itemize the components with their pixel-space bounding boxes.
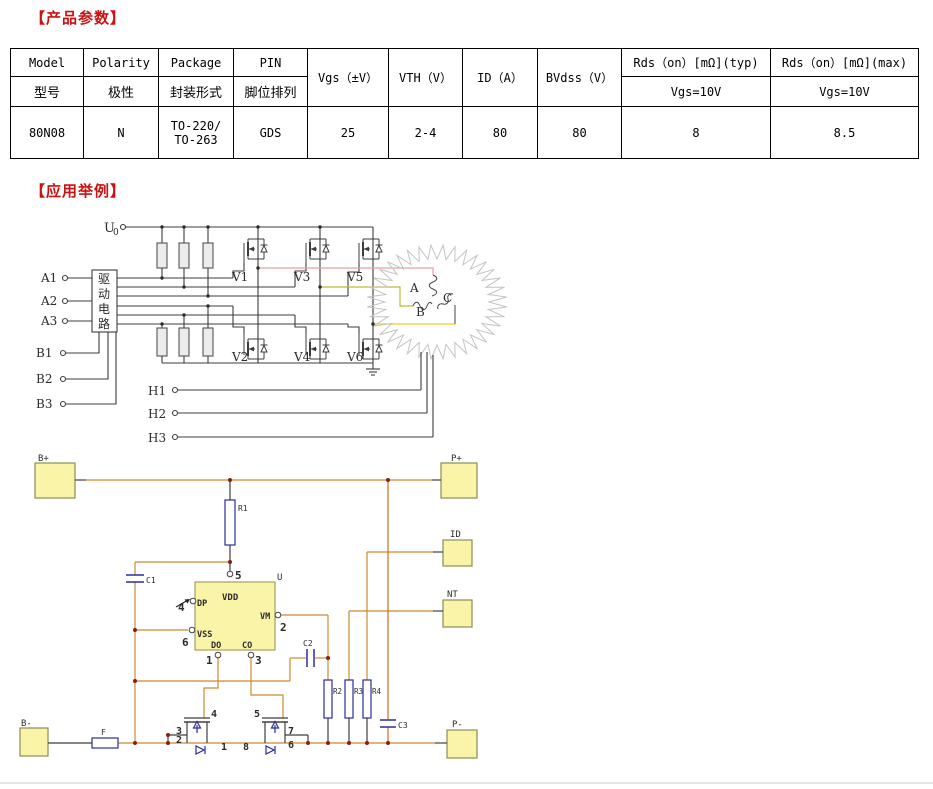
pad-p-minus xyxy=(447,730,477,758)
mosfet-q2: 5 8 7 6 xyxy=(243,709,308,754)
cell-package: TO-220/ TO-263 xyxy=(159,107,234,159)
mosfet-v3: V3 xyxy=(293,239,330,284)
hall-risers xyxy=(421,352,433,437)
ic-pin-co-label: CO xyxy=(242,641,252,651)
ic-pin-dp-label: DP xyxy=(197,599,207,609)
cell-id: 80 xyxy=(463,107,538,159)
drive-box-char-4: 路 xyxy=(98,316,110,331)
q1-pin4-number: 4 xyxy=(211,709,217,720)
col-polarity-cn: 极性 xyxy=(84,77,159,107)
input-b3-label: B3 xyxy=(36,397,52,411)
pad-id-label: ID xyxy=(450,530,461,540)
c2-label: C2 xyxy=(303,639,313,648)
resistor-r4: R4 xyxy=(363,680,382,718)
col-bvdss: BVdss（V） xyxy=(538,49,622,107)
col-pin-en: PIN xyxy=(234,49,308,77)
motor-stator-burst xyxy=(367,245,506,359)
parameters-table: Model Polarity Package PIN Vgs（±V） VTH（V… xyxy=(10,48,919,159)
resistor-r3: R3 xyxy=(345,680,363,718)
cell-model: 80N08 xyxy=(11,107,84,159)
pad-nt xyxy=(443,600,472,627)
cell-rds-max: 8.5 xyxy=(771,107,919,159)
input-a2-label: A2 xyxy=(40,294,57,308)
cell-rds-typ: 8 xyxy=(622,107,771,159)
cell-pin: GDS xyxy=(234,107,308,159)
pad-p-minus-label: P- xyxy=(452,720,463,730)
q1-pin1-number: 1 xyxy=(221,742,227,753)
fet-v1-label: V1 xyxy=(231,270,248,284)
hall-h3-label: H3 xyxy=(148,431,166,445)
ic-pin-do-label: DO xyxy=(211,641,221,651)
section-title-product-parameters: 【产品参数】 xyxy=(30,7,126,28)
pad-id xyxy=(443,540,472,566)
phase-c-label: C xyxy=(443,291,452,305)
col-pin-cn: 脚位排列 xyxy=(234,77,308,107)
ground-symbol xyxy=(366,363,380,375)
ic-pin-vm-label: VM xyxy=(260,612,270,622)
fet-v3-label: V3 xyxy=(293,270,310,284)
fuse-f: F xyxy=(92,728,118,748)
fet-v2-label: V2 xyxy=(231,350,248,364)
cell-package-line1: TO-220/ xyxy=(159,119,233,133)
pad-b-plus-label: B+ xyxy=(38,454,49,464)
u0-terminal-circle xyxy=(121,225,126,230)
data-row: 80N08 N TO-220/ TO-263 GDS 25 2-4 80 80 … xyxy=(11,107,919,159)
col-rds-max-cond: Vgs=10V xyxy=(771,77,919,107)
drive-box-char-2: 动 xyxy=(98,287,110,301)
col-model-en: Model xyxy=(11,49,84,77)
q1-body-arrow-icon xyxy=(194,722,201,734)
pad-nt-label: NT xyxy=(447,590,458,600)
capacitor-c2: C2 xyxy=(303,639,314,667)
fet-v6-label: V6 xyxy=(346,350,363,364)
ic-pin1-number: 1 xyxy=(206,654,213,667)
diagram-protection: B+ P+ ID NT B- P- xyxy=(20,454,477,758)
r1-label: R1 xyxy=(238,504,248,513)
junction-dots-inverter xyxy=(160,225,374,325)
cell-vth: 2-4 xyxy=(389,107,463,159)
pad-b-minus xyxy=(20,728,48,756)
drive-box-char-3: 电 xyxy=(98,302,110,316)
capacitor-c1: C1 xyxy=(126,575,156,585)
section-title-application-examples: 【应用举例】 xyxy=(30,180,126,201)
ic-pin-vdd-label: VDD xyxy=(222,593,239,603)
q2-pin-numbers: 5 8 7 6 xyxy=(243,709,294,753)
fet-v5-label: V5 xyxy=(346,270,363,284)
ic-pin-vss-label: VSS xyxy=(197,630,212,640)
phase-a-label: A xyxy=(409,281,419,295)
c3-label: C3 xyxy=(398,721,408,730)
ic-pin2-number: 2 xyxy=(280,621,287,634)
pad-p-plus-label: P+ xyxy=(451,454,462,464)
cell-package-line2: TO-263 xyxy=(159,133,233,147)
cell-bvdss: 80 xyxy=(538,107,622,159)
mosfet-q1: 4 3 2 1 xyxy=(168,709,227,754)
header-row-en: Model Polarity Package PIN Vgs（±V） VTH（V… xyxy=(11,49,919,77)
inputs-a: A1 A2 A3 xyxy=(40,271,92,328)
q2-pin7-number: 7 xyxy=(288,726,294,737)
r2-label: R2 xyxy=(333,687,342,696)
q2-body-diode-icon xyxy=(266,746,275,754)
col-rds-typ: Rds（on）[mΩ](typ) xyxy=(622,49,771,77)
q1-pin2-number: 2 xyxy=(176,735,182,746)
u0-subscript: 0 xyxy=(113,228,119,238)
q2-pin6-number: 6 xyxy=(288,740,294,751)
pad-b-plus xyxy=(35,463,75,498)
fet-v4-label: V4 xyxy=(293,350,311,364)
col-vth: VTH（V） xyxy=(389,49,463,107)
col-rds-max: Rds（on）[mΩ](max) xyxy=(771,49,919,77)
diagram-inverter: U 0 驱 动 电 路 A1 A2 A3 xyxy=(36,221,507,445)
col-vgs: Vgs（±V） xyxy=(308,49,389,107)
hall-h1-label: H1 xyxy=(148,384,166,398)
col-id: ID（A） xyxy=(463,49,538,107)
q1-body-diode-icon xyxy=(196,746,205,754)
input-a1-label: A1 xyxy=(40,271,57,285)
r4-label: R4 xyxy=(372,687,382,696)
pad-p-plus xyxy=(441,463,477,498)
mosfet-v5: V5 xyxy=(346,239,383,284)
capacitor-c3: C3 xyxy=(380,720,408,730)
drive-box-char-1: 驱 xyxy=(98,272,110,286)
application-circuit-diagrams: U 0 驱 动 电 路 A1 A2 A3 xyxy=(0,200,933,789)
mosfet-v1: V1 xyxy=(231,239,268,284)
c1-label: C1 xyxy=(146,576,156,585)
mosfet-v2: V2 xyxy=(231,333,268,364)
datasheet-page: { "sections": { "params_title": "【产品参数】"… xyxy=(0,0,933,789)
resistor-r1: R1 xyxy=(225,500,248,545)
inputs-b: B1 B2 B3 xyxy=(36,332,116,411)
cell-vgs: 25 xyxy=(308,107,389,159)
col-rds-typ-cond: Vgs=10V xyxy=(622,77,771,107)
ic-pin3-number: 3 xyxy=(255,654,262,667)
hall-lines: H1 H2 H3 xyxy=(148,384,433,445)
drive-circuit-box: 驱 动 电 路 xyxy=(92,270,117,332)
ic-refdes: U xyxy=(277,573,282,583)
f-label: F xyxy=(101,728,106,737)
col-polarity-en: Polarity xyxy=(84,49,159,77)
mosfet-v4: V4 xyxy=(293,333,330,364)
hall-h2-label: H2 xyxy=(148,407,166,421)
col-package-en: Package xyxy=(159,49,234,77)
q2-pin8-number: 8 xyxy=(243,742,249,753)
r3-label: R3 xyxy=(354,687,363,696)
supply-terminal: U 0 xyxy=(104,221,373,238)
ic-pin6-number: 6 xyxy=(182,636,189,649)
q1-pin-numbers: 4 3 2 1 xyxy=(176,709,227,753)
pad-b-minus-label: B- xyxy=(21,719,32,729)
motor: A B C xyxy=(367,245,506,437)
col-model-cn: 型号 xyxy=(11,77,84,107)
q2-body-arrow-icon xyxy=(272,722,279,734)
cell-polarity: N xyxy=(84,107,159,159)
input-b1-label: B1 xyxy=(36,346,52,360)
ic-pin5-number: 5 xyxy=(235,569,242,582)
input-b2-label: B2 xyxy=(36,372,52,386)
resistor-r2: R2 xyxy=(324,680,342,718)
col-package-cn: 封装形式 xyxy=(159,77,234,107)
input-a3-label: A3 xyxy=(40,314,57,328)
mosfet-v6: V6 xyxy=(346,333,383,364)
q2-pin5-number: 5 xyxy=(254,709,260,720)
protection-ic: U VDD DP VSS DO CO VM 5 4 6 1 3 2 xyxy=(176,569,287,667)
page-bottom-divider xyxy=(0,782,933,784)
phase-b-label: B xyxy=(416,305,425,319)
